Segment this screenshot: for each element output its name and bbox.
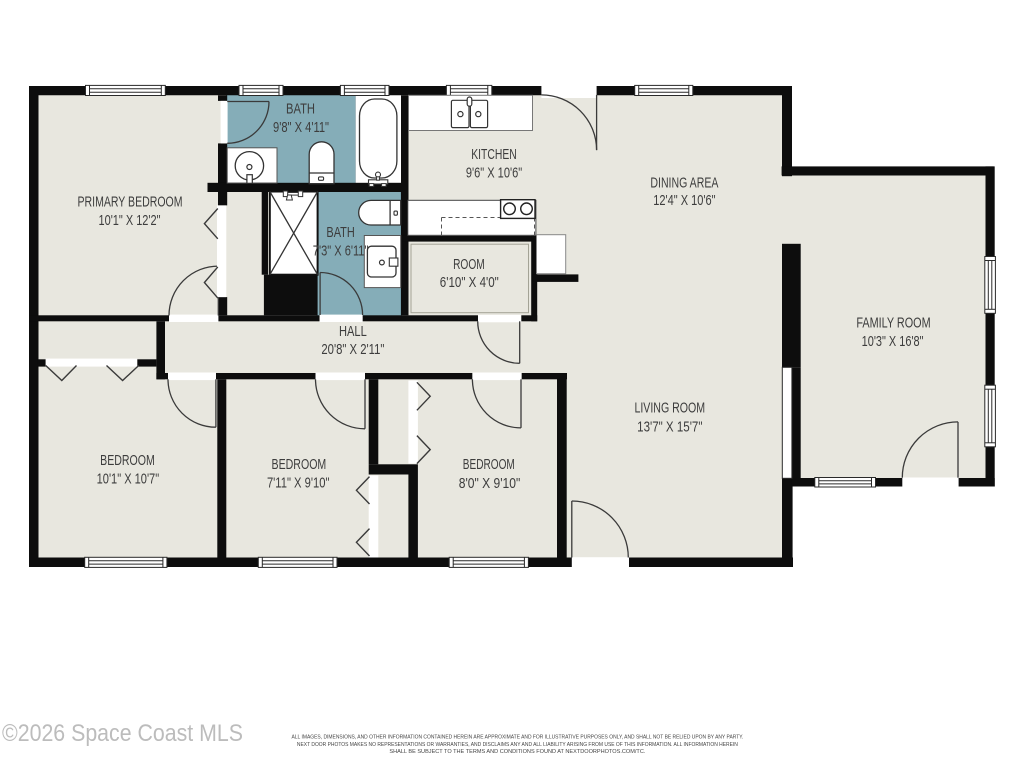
svg-text:BEDROOM: BEDROOM xyxy=(463,456,515,473)
svg-text:10'3" X 16'8": 10'3" X 16'8" xyxy=(862,333,924,350)
svg-text:PRIMARY BEDROOM: PRIMARY BEDROOM xyxy=(78,193,183,210)
svg-text:BEDROOM: BEDROOM xyxy=(100,452,155,469)
svg-text:12'4" X 10'6": 12'4" X 10'6" xyxy=(653,192,715,209)
svg-text:DINING AREA: DINING AREA xyxy=(650,174,718,191)
svg-text:10'1" X 10'7": 10'1" X 10'7" xyxy=(97,471,160,488)
svg-text:6'10" X 4'0": 6'10" X 4'0" xyxy=(440,274,499,291)
svg-text:8'0" X 9'10": 8'0" X 9'10" xyxy=(459,475,521,492)
svg-text:10'1" X 12'2": 10'1" X 12'2" xyxy=(99,212,161,229)
svg-text:ALL IMAGES, DIMENSIONS, AND OT: ALL IMAGES, DIMENSIONS, AND OTHER INFORM… xyxy=(292,735,744,741)
svg-text:SHALL BE SUBJECT TO THE TERMS: SHALL BE SUBJECT TO THE TERMS AND CONDIT… xyxy=(389,749,645,755)
svg-text:LIVING ROOM: LIVING ROOM xyxy=(634,399,705,416)
svg-text:13'7" X 15'7": 13'7" X 15'7" xyxy=(637,419,702,436)
svg-text:HALL: HALL xyxy=(339,323,367,340)
svg-text:KITCHEN: KITCHEN xyxy=(471,146,517,163)
svg-text:NEXT DOOR PHOTOS MAKES NO REPR: NEXT DOOR PHOTOS MAKES NO REPRESENTATION… xyxy=(297,742,738,748)
svg-text:20'8" X 2'11": 20'8" X 2'11" xyxy=(321,341,384,358)
svg-text:BATH: BATH xyxy=(286,101,315,118)
svg-text:9'6" X 10'6": 9'6" X 10'6" xyxy=(466,164,522,181)
svg-text:©2026 Space Coast MLS: ©2026 Space Coast MLS xyxy=(2,720,243,747)
svg-text:9'8" X 4'11": 9'8" X 4'11" xyxy=(273,119,329,136)
svg-text:BEDROOM: BEDROOM xyxy=(272,456,327,473)
svg-text:7'11" X 9'10": 7'11" X 9'10" xyxy=(267,475,330,492)
svg-text:FAMILY ROOM: FAMILY ROOM xyxy=(856,315,930,332)
svg-text:BATH: BATH xyxy=(326,224,354,241)
svg-text:ROOM: ROOM xyxy=(453,256,485,273)
svg-text:7'3" X 6'11": 7'3" X 6'11" xyxy=(313,243,369,260)
